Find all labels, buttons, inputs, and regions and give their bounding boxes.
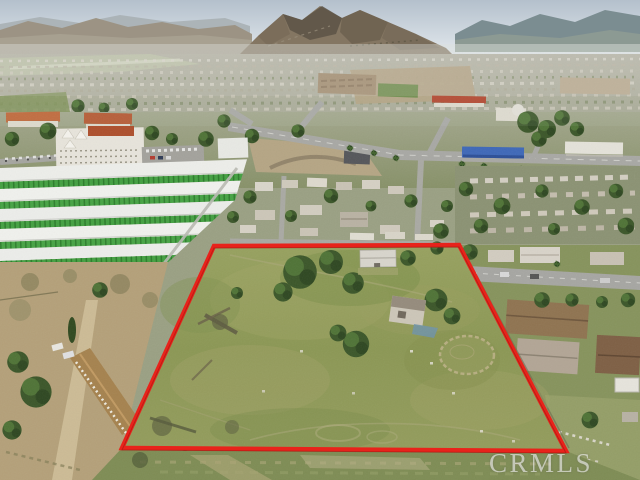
watermark: CRMLS — [489, 448, 609, 479]
aerial-photo: CRMLS — [0, 0, 640, 480]
grain-overlay — [0, 50, 640, 480]
